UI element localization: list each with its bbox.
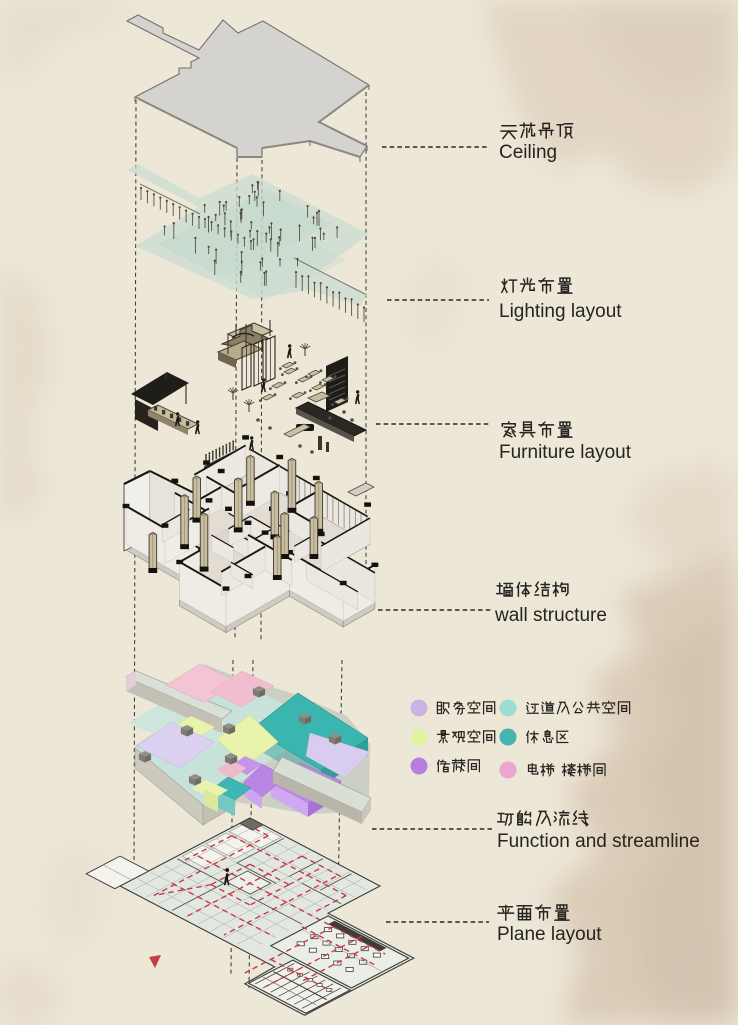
svg-text:Plane layout: Plane layout [497,924,602,945]
svg-text:Lighting layout: Lighting layout [499,301,622,322]
svg-text:Function and streamline: Function and streamline [497,831,700,852]
svg-text:Furniture layout: Furniture layout [499,442,632,463]
svg-text:wall structure: wall structure [494,605,607,626]
svg-text:Ceiling: Ceiling [499,142,557,163]
